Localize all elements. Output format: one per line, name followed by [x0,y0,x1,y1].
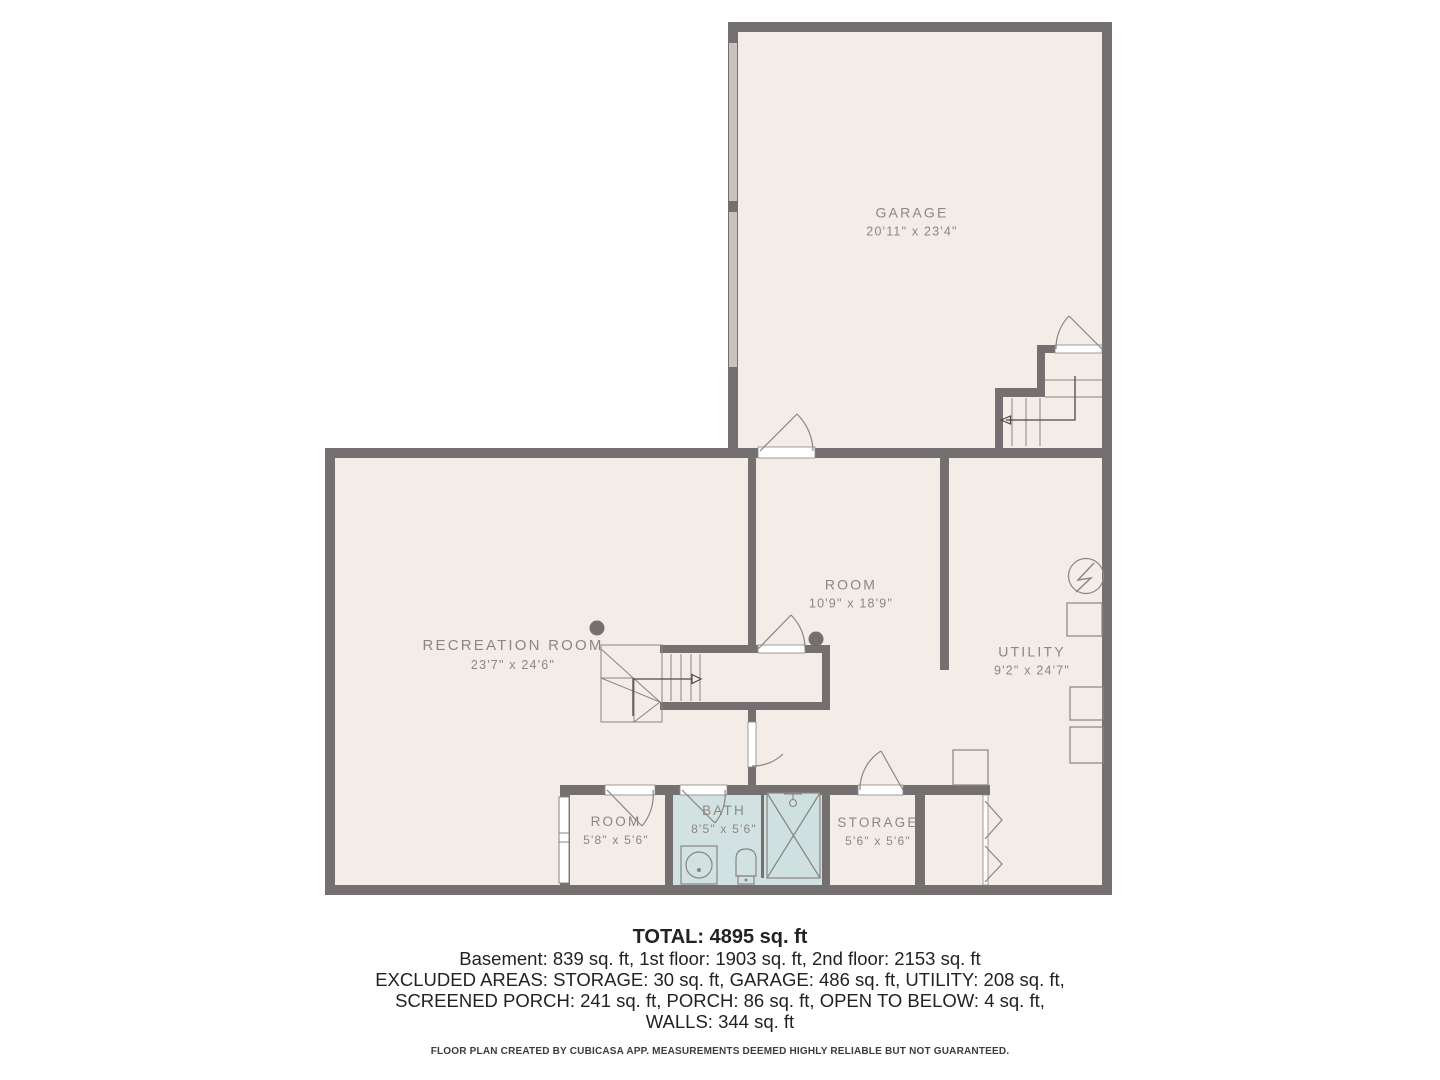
floor-fills [335,32,1102,885]
room-dims: 10'9" x 18'9" [809,596,893,612]
shower-stall-icon [767,793,820,878]
room-name: BATH [691,803,757,820]
excluded-areas-1: EXCLUDED AREAS: STORAGE: 30 sq. ft, GARA… [0,969,1440,990]
garage-floor [738,32,1102,448]
room-label-small-room: ROOM 5'8" x 5'6" [583,814,649,848]
room-label-storage: STORAGE 5'6" x 5'6" [837,815,918,849]
garage-door-panel-icon [729,212,737,367]
area-summary: TOTAL: 4895 sq. ft Basement: 839 sq. ft,… [0,926,1440,1057]
room-dims: 20'11" x 23'4" [866,224,957,240]
floor-areas: Basement: 839 sq. ft, 1st floor: 1903 sq… [0,948,1440,969]
garage-door-panel-icon [729,43,737,201]
room-name: RECREATION ROOM [422,637,603,656]
floor-plan-page: GARAGE 20'11" x 23'4" RECREATION ROOM 23… [0,0,1440,1080]
room-name: UTILITY [994,643,1070,661]
window-small-room [559,797,569,883]
room-dims: 23'7" x 24'6" [422,658,603,674]
room-label-garage: GARAGE 20'11" x 23'4" [866,204,957,239]
room-dims: 5'8" x 5'6" [583,833,649,848]
column-dot-icon [590,621,605,636]
room-label-recreation: RECREATION ROOM 23'7" x 24'6" [422,637,603,673]
room-label-utility: UTILITY 9'2" x 24'7" [994,643,1070,678]
room-name: STORAGE [837,815,918,832]
floor-plan-canvas [0,0,1440,1080]
room-name: ROOM [583,814,649,831]
wall-bath-shower-divider [761,795,764,878]
room-dims: 8'5" x 5'6" [691,822,757,837]
wall-room-utility-divider [940,458,949,670]
room-label-room: ROOM 10'9" x 18'9" [809,576,893,611]
room-name: GARAGE [866,204,957,222]
total-area: TOTAL: 4895 sq. ft [0,926,1440,948]
room-dims: 5'6" x 5'6" [837,834,918,849]
excluded-areas-2: SCREENED PORCH: 241 sq. ft, PORCH: 86 sq… [0,990,1440,1011]
disclaimer-text: FLOOR PLAN CREATED BY CUBICASA APP. MEAS… [0,1046,1440,1057]
walls-area: WALLS: 344 sq. ft [0,1011,1440,1032]
wall-rec-room-divider [748,458,756,645]
column-dot-icon [809,632,824,647]
room-label-bath: BATH 8'5" x 5'6" [691,803,757,837]
window-icon [559,797,569,883]
room-name: ROOM [809,576,893,594]
room-dims: 9'2" x 24'7" [994,663,1070,679]
